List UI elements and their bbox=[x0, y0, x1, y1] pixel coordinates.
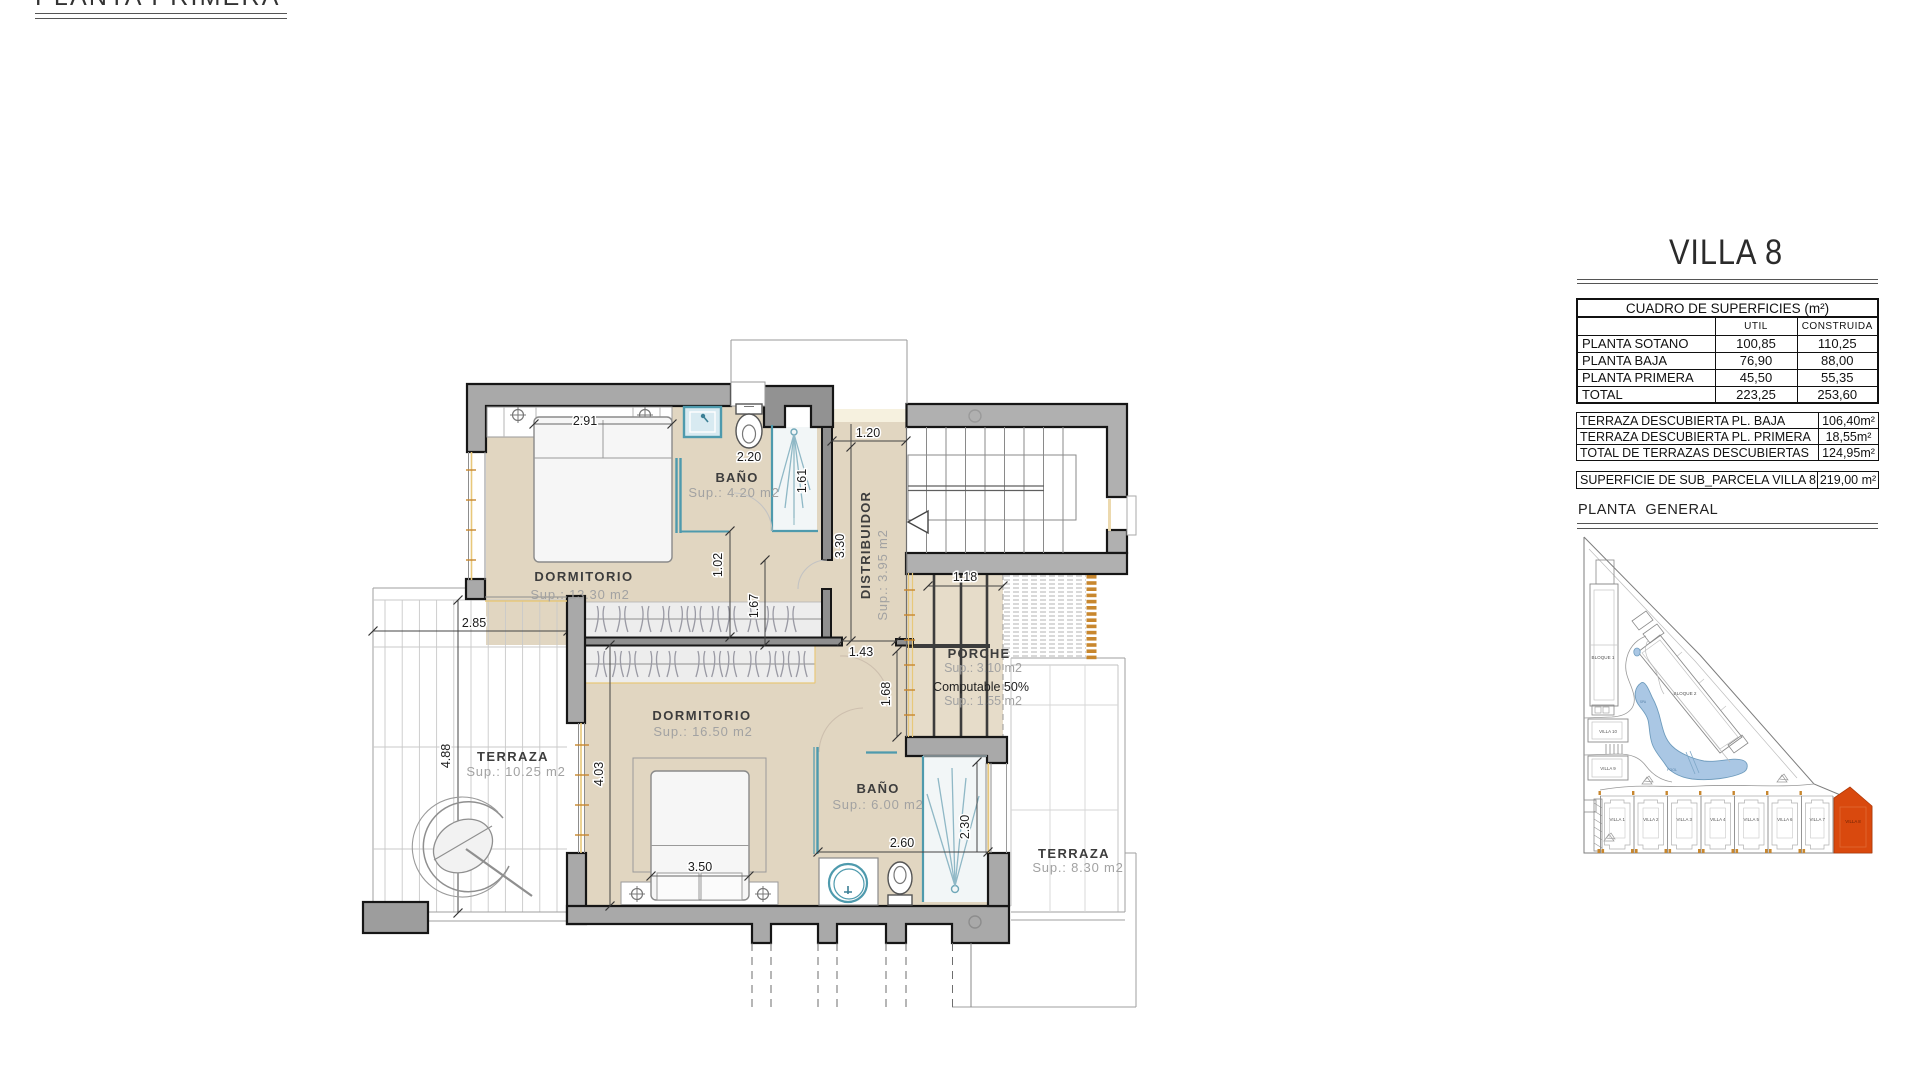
svg-text:3.50: 3.50 bbox=[688, 860, 712, 874]
svg-text:DORMITORIO: DORMITORIO bbox=[534, 569, 633, 584]
svg-text:2.20: 2.20 bbox=[737, 450, 761, 464]
svg-text:Sup.: 16.50 m2: Sup.: 16.50 m2 bbox=[653, 724, 752, 739]
svg-text:Sup.: 8.30 m2: Sup.: 8.30 m2 bbox=[1032, 860, 1123, 875]
svg-text:TERRAZA: TERRAZA bbox=[1038, 846, 1110, 861]
svg-text:Sup.: 10.25 m2: Sup.: 10.25 m2 bbox=[466, 764, 565, 779]
svg-text:4.88: 4.88 bbox=[439, 744, 453, 768]
svg-text:TERRAZA: TERRAZA bbox=[477, 749, 549, 764]
svg-text:1.20: 1.20 bbox=[856, 426, 880, 440]
svg-text:Sup.: 3.10 m2: Sup.: 3.10 m2 bbox=[944, 661, 1022, 675]
svg-text:PORCHE: PORCHE bbox=[948, 646, 1011, 661]
svg-text:Computable 50%: Computable 50% bbox=[933, 680, 1029, 694]
svg-text:Sup.: 3.95 m2: Sup.: 3.95 m2 bbox=[875, 529, 890, 620]
svg-text:VILLA 5: VILLA 5 bbox=[1744, 817, 1760, 822]
svg-text:Sup.: 4.20 m2: Sup.: 4.20 m2 bbox=[688, 485, 779, 500]
svg-text:1.61: 1.61 bbox=[795, 469, 809, 493]
svg-text:2.30: 2.30 bbox=[958, 815, 972, 839]
svg-text:1.68: 1.68 bbox=[879, 682, 893, 706]
svg-text:SPA: SPA bbox=[1640, 700, 1647, 704]
svg-text:Sup.: 1.55 m2: Sup.: 1.55 m2 bbox=[944, 694, 1022, 708]
svg-text:VILLA 4: VILLA 4 bbox=[1710, 817, 1726, 822]
svg-text:VILLA 2: VILLA 2 bbox=[1643, 817, 1659, 822]
svg-text:BAÑO: BAÑO bbox=[715, 470, 758, 485]
svg-text:VILLA 10: VILLA 10 bbox=[1599, 729, 1617, 734]
svg-text:2.91: 2.91 bbox=[573, 414, 597, 428]
svg-text:VILLA 7: VILLA 7 bbox=[1810, 817, 1826, 822]
svg-text:1.67: 1.67 bbox=[747, 594, 761, 618]
svg-text:VILLA 8: VILLA 8 bbox=[1845, 819, 1861, 824]
svg-text:DORMITORIO: DORMITORIO bbox=[652, 708, 751, 723]
svg-text:1.02: 1.02 bbox=[711, 553, 725, 577]
svg-text:2.60: 2.60 bbox=[890, 836, 914, 850]
svg-text:BLOQUE 2: BLOQUE 2 bbox=[1674, 691, 1697, 696]
svg-text:VILLA 3: VILLA 3 bbox=[1677, 817, 1693, 822]
svg-text:POOL: POOL bbox=[1667, 768, 1677, 772]
svg-text:BAÑO: BAÑO bbox=[856, 781, 899, 796]
svg-text:BLOQUE 1: BLOQUE 1 bbox=[1592, 655, 1615, 660]
svg-text:Sup.: 13.30 m2: Sup.: 13.30 m2 bbox=[530, 587, 629, 602]
svg-text:1.43: 1.43 bbox=[849, 645, 873, 659]
svg-text:3.30: 3.30 bbox=[833, 534, 847, 558]
svg-text:VILLA 9: VILLA 9 bbox=[1600, 766, 1616, 771]
svg-text:VILLA 1: VILLA 1 bbox=[1610, 817, 1626, 822]
svg-text:4.03: 4.03 bbox=[592, 762, 606, 786]
svg-text:Sup.: 6.00 m2: Sup.: 6.00 m2 bbox=[832, 797, 923, 812]
svg-text:VILLA 6: VILLA 6 bbox=[1777, 817, 1793, 822]
svg-text:1.18: 1.18 bbox=[953, 570, 977, 584]
svg-text:DISTRIBUIDOR: DISTRIBUIDOR bbox=[858, 491, 873, 599]
svg-text:2.85: 2.85 bbox=[462, 616, 486, 630]
